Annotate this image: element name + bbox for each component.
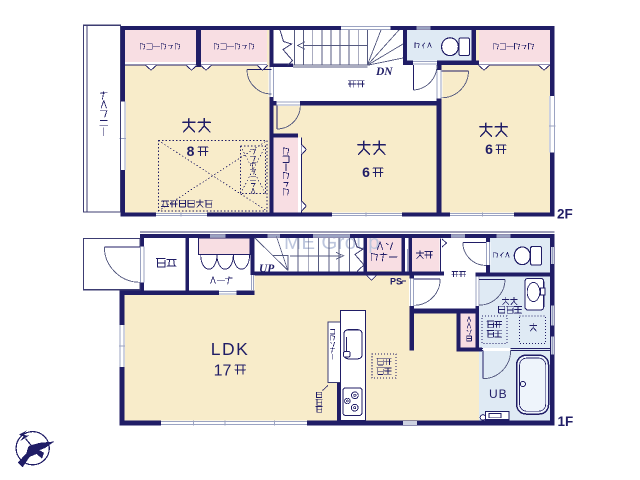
svg-text:8: 8 [187,143,195,159]
svg-text:1F: 1F [558,414,574,429]
svg-text:LDK: LDK [211,339,250,359]
svg-text:6: 6 [362,164,370,180]
svg-text:UP: UP [259,263,275,275]
svg-text:6: 6 [485,141,493,157]
svg-text:17: 17 [214,363,232,380]
svg-text:2F: 2F [557,207,573,222]
svg-text:PS: PS [390,277,402,287]
svg-text:DN: DN [375,66,393,78]
svg-text:UB: UB [489,387,508,401]
